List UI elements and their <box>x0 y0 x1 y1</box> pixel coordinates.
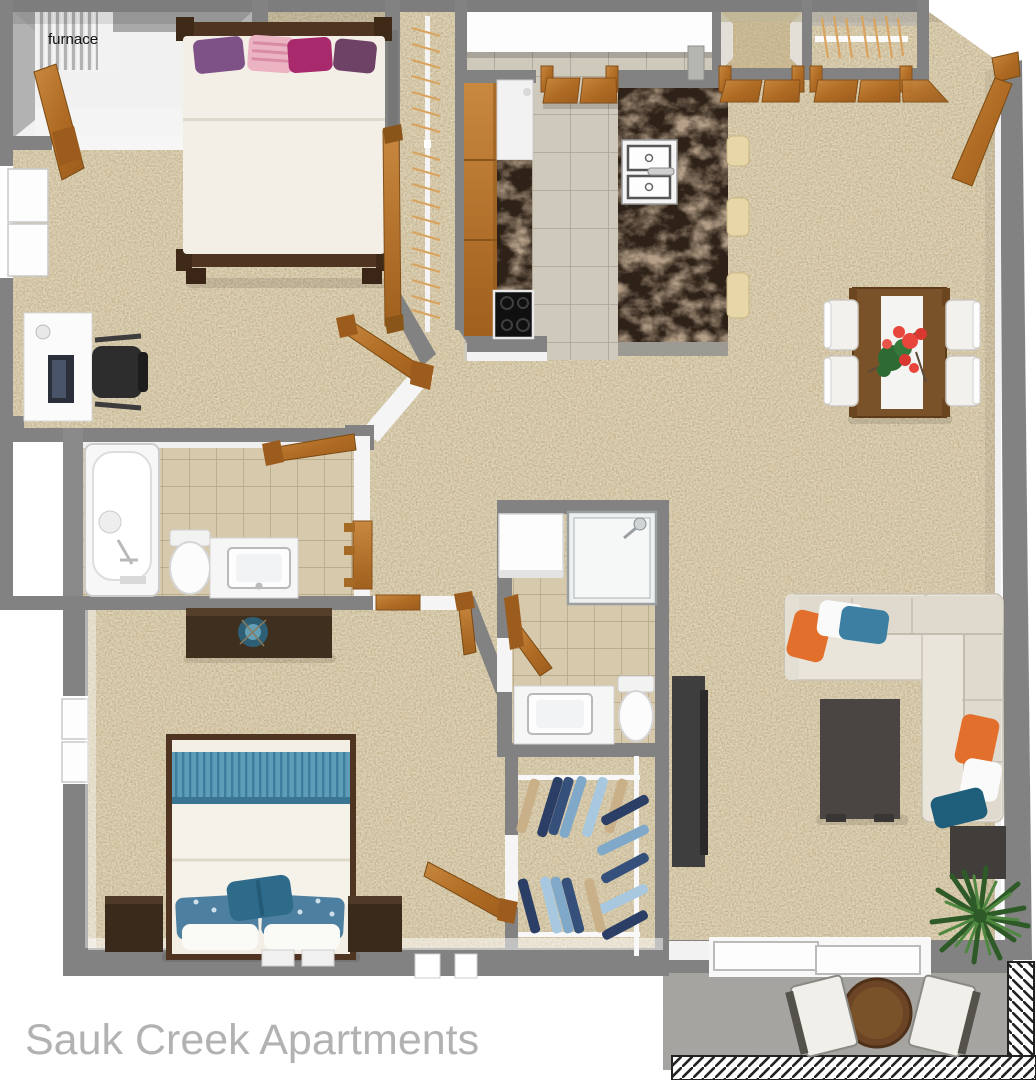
svg-text:Sauk Creek Apartments: Sauk Creek Apartments <box>25 1016 479 1064</box>
svg-text:furnace: furnace <box>48 31 98 48</box>
